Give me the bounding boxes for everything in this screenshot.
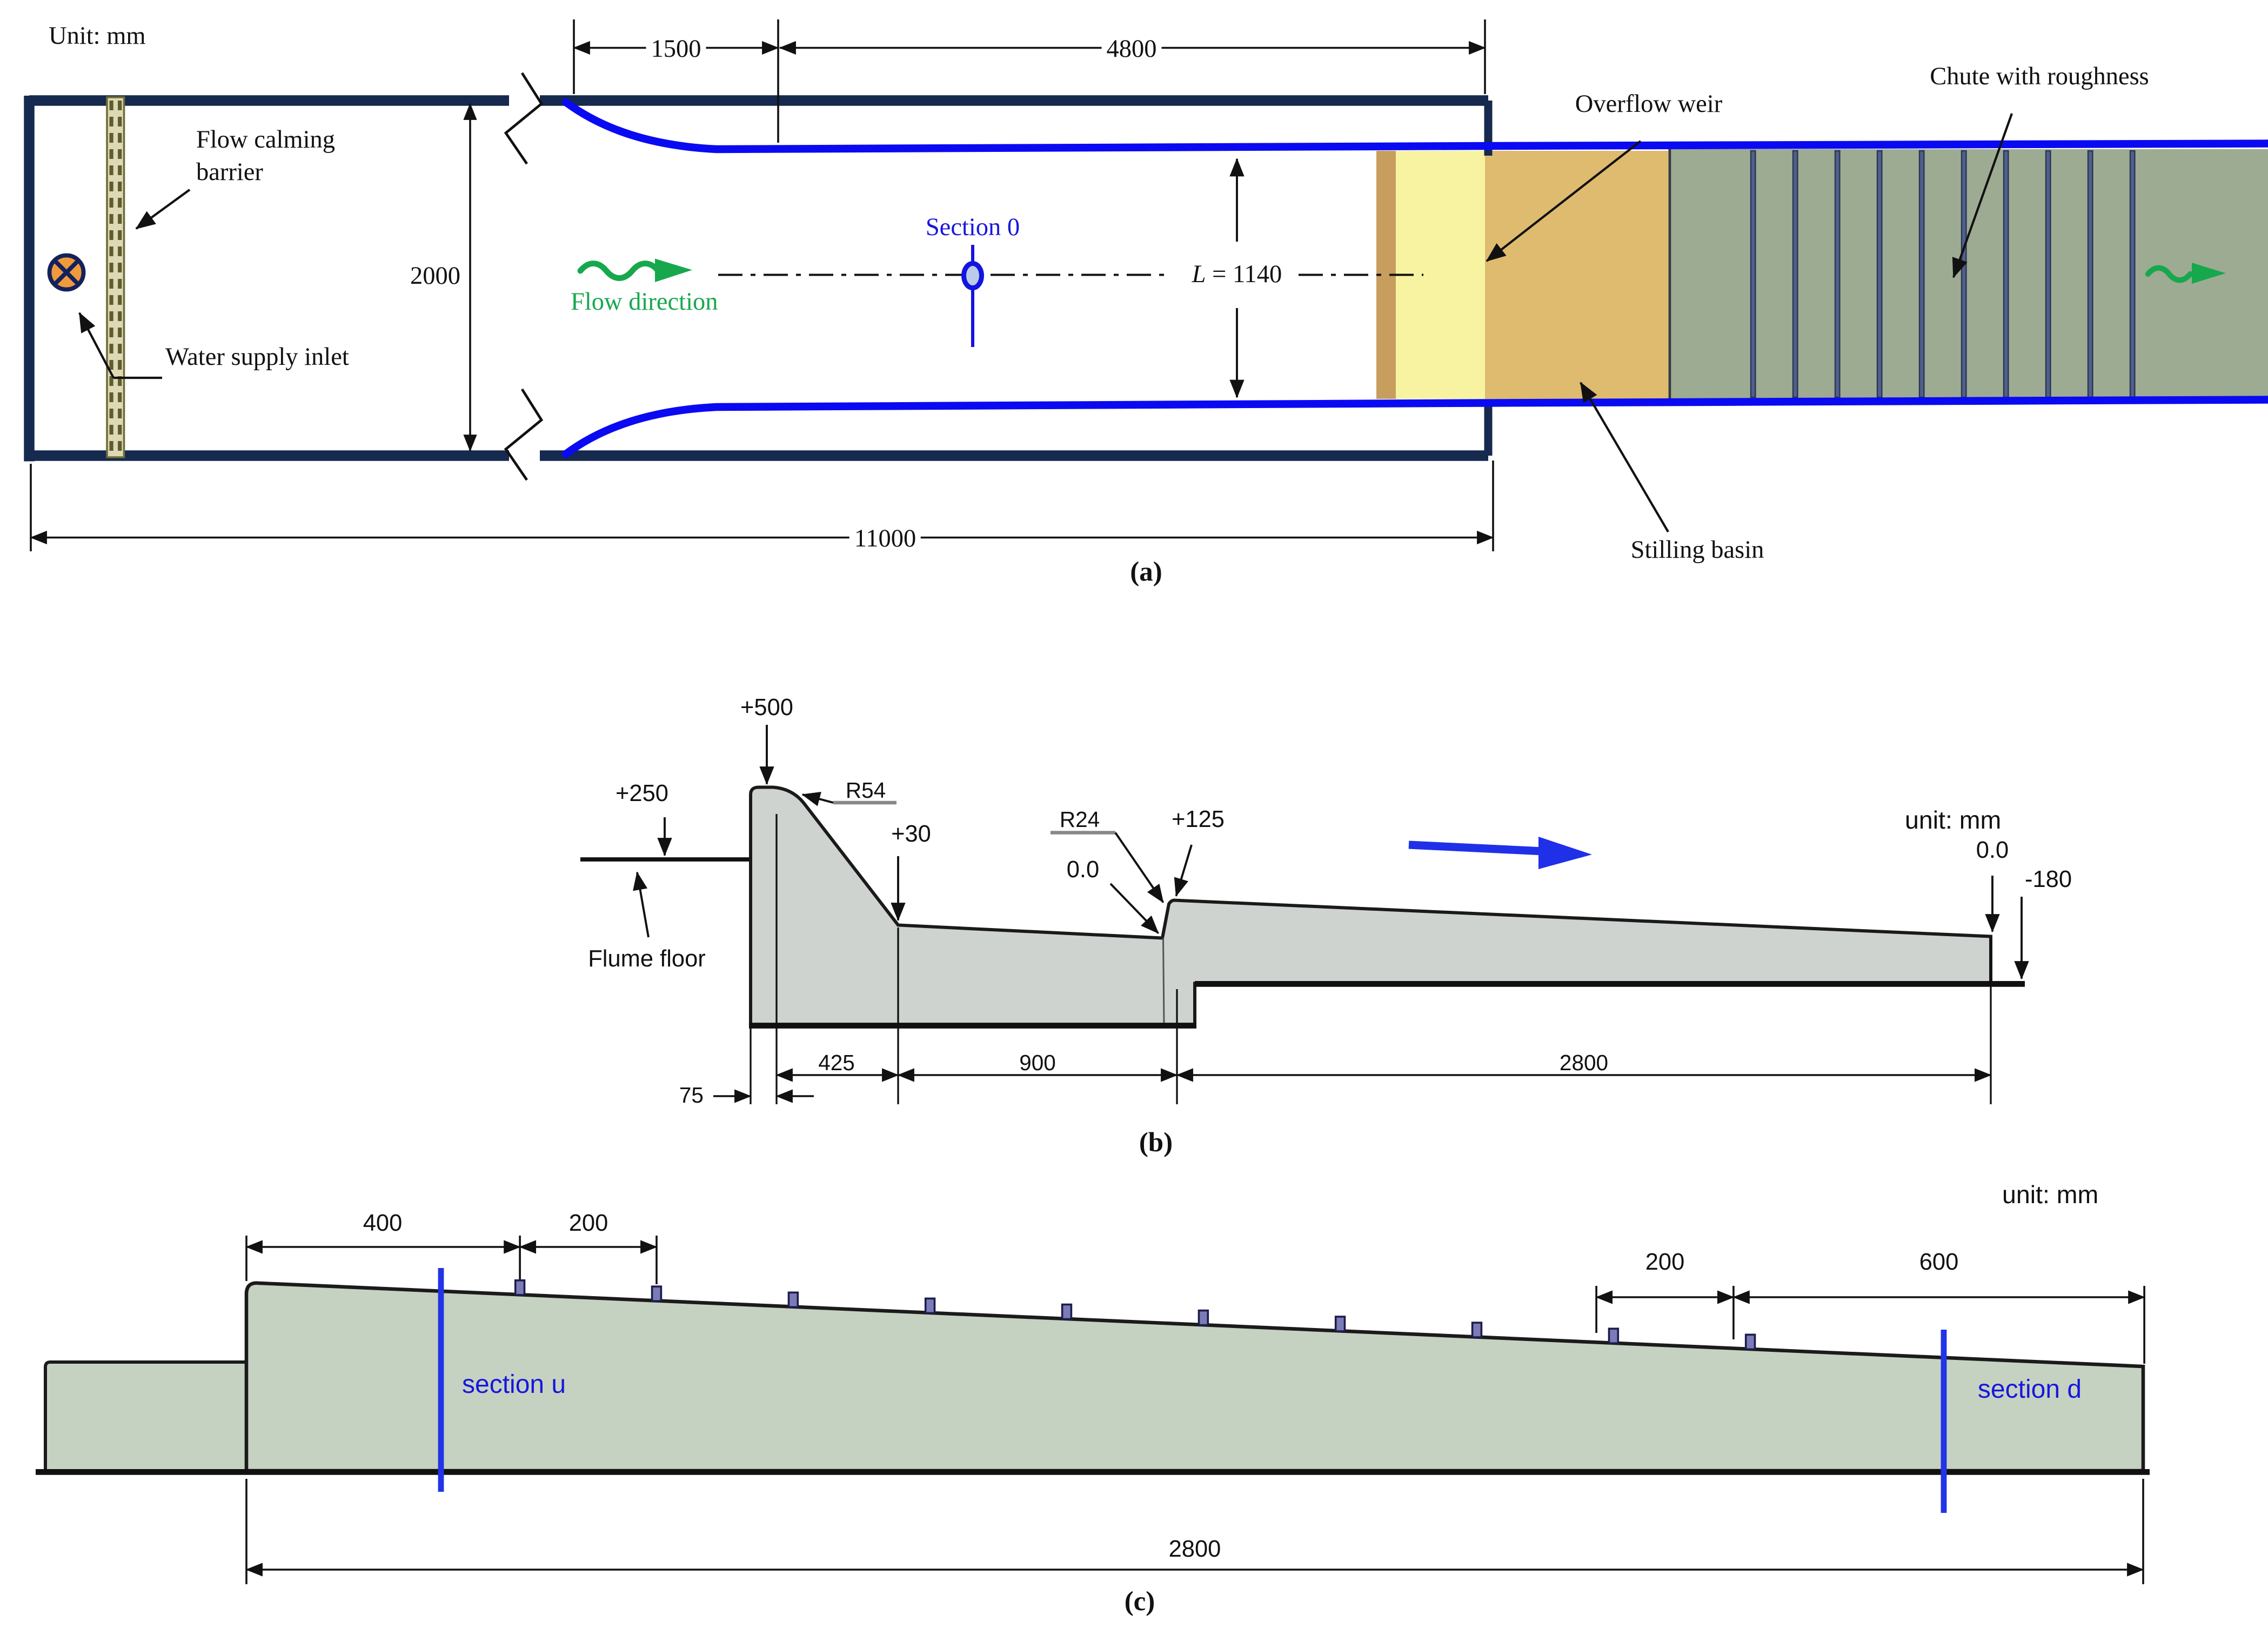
chute-with-roughness-label: Chute with roughness bbox=[1930, 62, 2149, 94]
flow-direction-label: Flow direction bbox=[571, 287, 718, 319]
flume-width-dim-label: 2000 bbox=[350, 261, 460, 293]
chute-strip bbox=[1668, 149, 2268, 399]
unit-label-a: Unit: mm bbox=[49, 21, 146, 54]
unit-label-b: unit: mm bbox=[1905, 806, 2001, 838]
crest-elevation-label: +500 bbox=[740, 694, 793, 725]
block-spacing-right-dim-label: 200 bbox=[1645, 1249, 1685, 1279]
chute-length-dim-label-c: 2800 bbox=[1169, 1536, 1221, 1566]
first-block-offset-dim-label: 400 bbox=[363, 1210, 403, 1240]
outlet-drop-label: -180 bbox=[2025, 866, 2072, 897]
figure-flume-experiment: Unit: mm Flow calming barrier Water supp… bbox=[0, 0, 2268, 1628]
flow-arrow-icon-b bbox=[1409, 837, 1592, 869]
chute-start-elevation-label: +125 bbox=[1172, 806, 1225, 837]
upstream-ledge bbox=[45, 1362, 246, 1471]
approach-length-dim-label: 4800 bbox=[1102, 34, 1162, 66]
channel-width-dim-label: L = 1140 bbox=[1187, 259, 1287, 292]
section-0-marker bbox=[964, 245, 982, 347]
section-d-label: section d bbox=[1978, 1375, 2082, 1409]
flume-floor-label: Flume floor bbox=[588, 945, 706, 976]
flow-calming-barrier bbox=[107, 97, 124, 457]
flow-calming-barrier-label: Flow calming barrier bbox=[196, 125, 399, 190]
flow-direction-arrow-icon bbox=[580, 259, 692, 283]
basin-datum-label: 0.0 bbox=[1067, 856, 1100, 887]
caption-c: (c) bbox=[1125, 1584, 1155, 1620]
water-supply-inlet-icon bbox=[50, 256, 84, 290]
stilling-basin-strip bbox=[1485, 151, 1668, 399]
panel-c-chute-profile bbox=[36, 1236, 2150, 1584]
unit-label-c: unit: mm bbox=[2002, 1180, 2098, 1213]
toe-elevation-label: +30 bbox=[891, 820, 931, 851]
caption-a: (a) bbox=[1130, 555, 1162, 590]
break-symbol-bottom bbox=[506, 389, 541, 480]
step-radius-label: R24 bbox=[1060, 806, 1100, 835]
block-spacing-left-dim-label: 200 bbox=[569, 1210, 608, 1240]
stilling-basin-label: Stilling basin bbox=[1631, 535, 1764, 568]
basin-length-dim-label: 900 bbox=[1019, 1049, 1056, 1078]
overflow-weir-label: Overflow weir bbox=[1575, 89, 1722, 122]
weir-chute-profile bbox=[751, 788, 1991, 1025]
weir-slope-run-dim-label: 425 bbox=[818, 1049, 855, 1078]
total-length-dim-label: 11000 bbox=[849, 524, 921, 556]
crest-offset-dim-label: 75 bbox=[648, 1082, 704, 1110]
flume-floor-elevation-label: +250 bbox=[615, 780, 668, 811]
panel-c-dim-bottom bbox=[246, 1479, 2143, 1584]
break-symbol-top bbox=[506, 73, 541, 164]
end-offset-dim-label: 600 bbox=[1919, 1249, 1959, 1279]
panel-c-dims-left bbox=[246, 1236, 657, 1284]
outlet-datum-label: 0.0 bbox=[1976, 837, 2009, 868]
panel-b-weir-profile bbox=[580, 725, 2025, 1104]
section-u-label: section u bbox=[462, 1370, 566, 1404]
chute-length-dim-label-b: 2800 bbox=[1560, 1049, 1608, 1078]
crest-radius-label: R54 bbox=[846, 777, 886, 805]
contraction-length-dim-label: 1500 bbox=[646, 34, 706, 66]
water-supply-inlet-label: Water supply inlet bbox=[165, 342, 360, 375]
caption-b: (b) bbox=[1139, 1125, 1173, 1161]
panel-b-dimensions bbox=[713, 1075, 1991, 1096]
section-0-label: Section 0 bbox=[926, 212, 1020, 245]
